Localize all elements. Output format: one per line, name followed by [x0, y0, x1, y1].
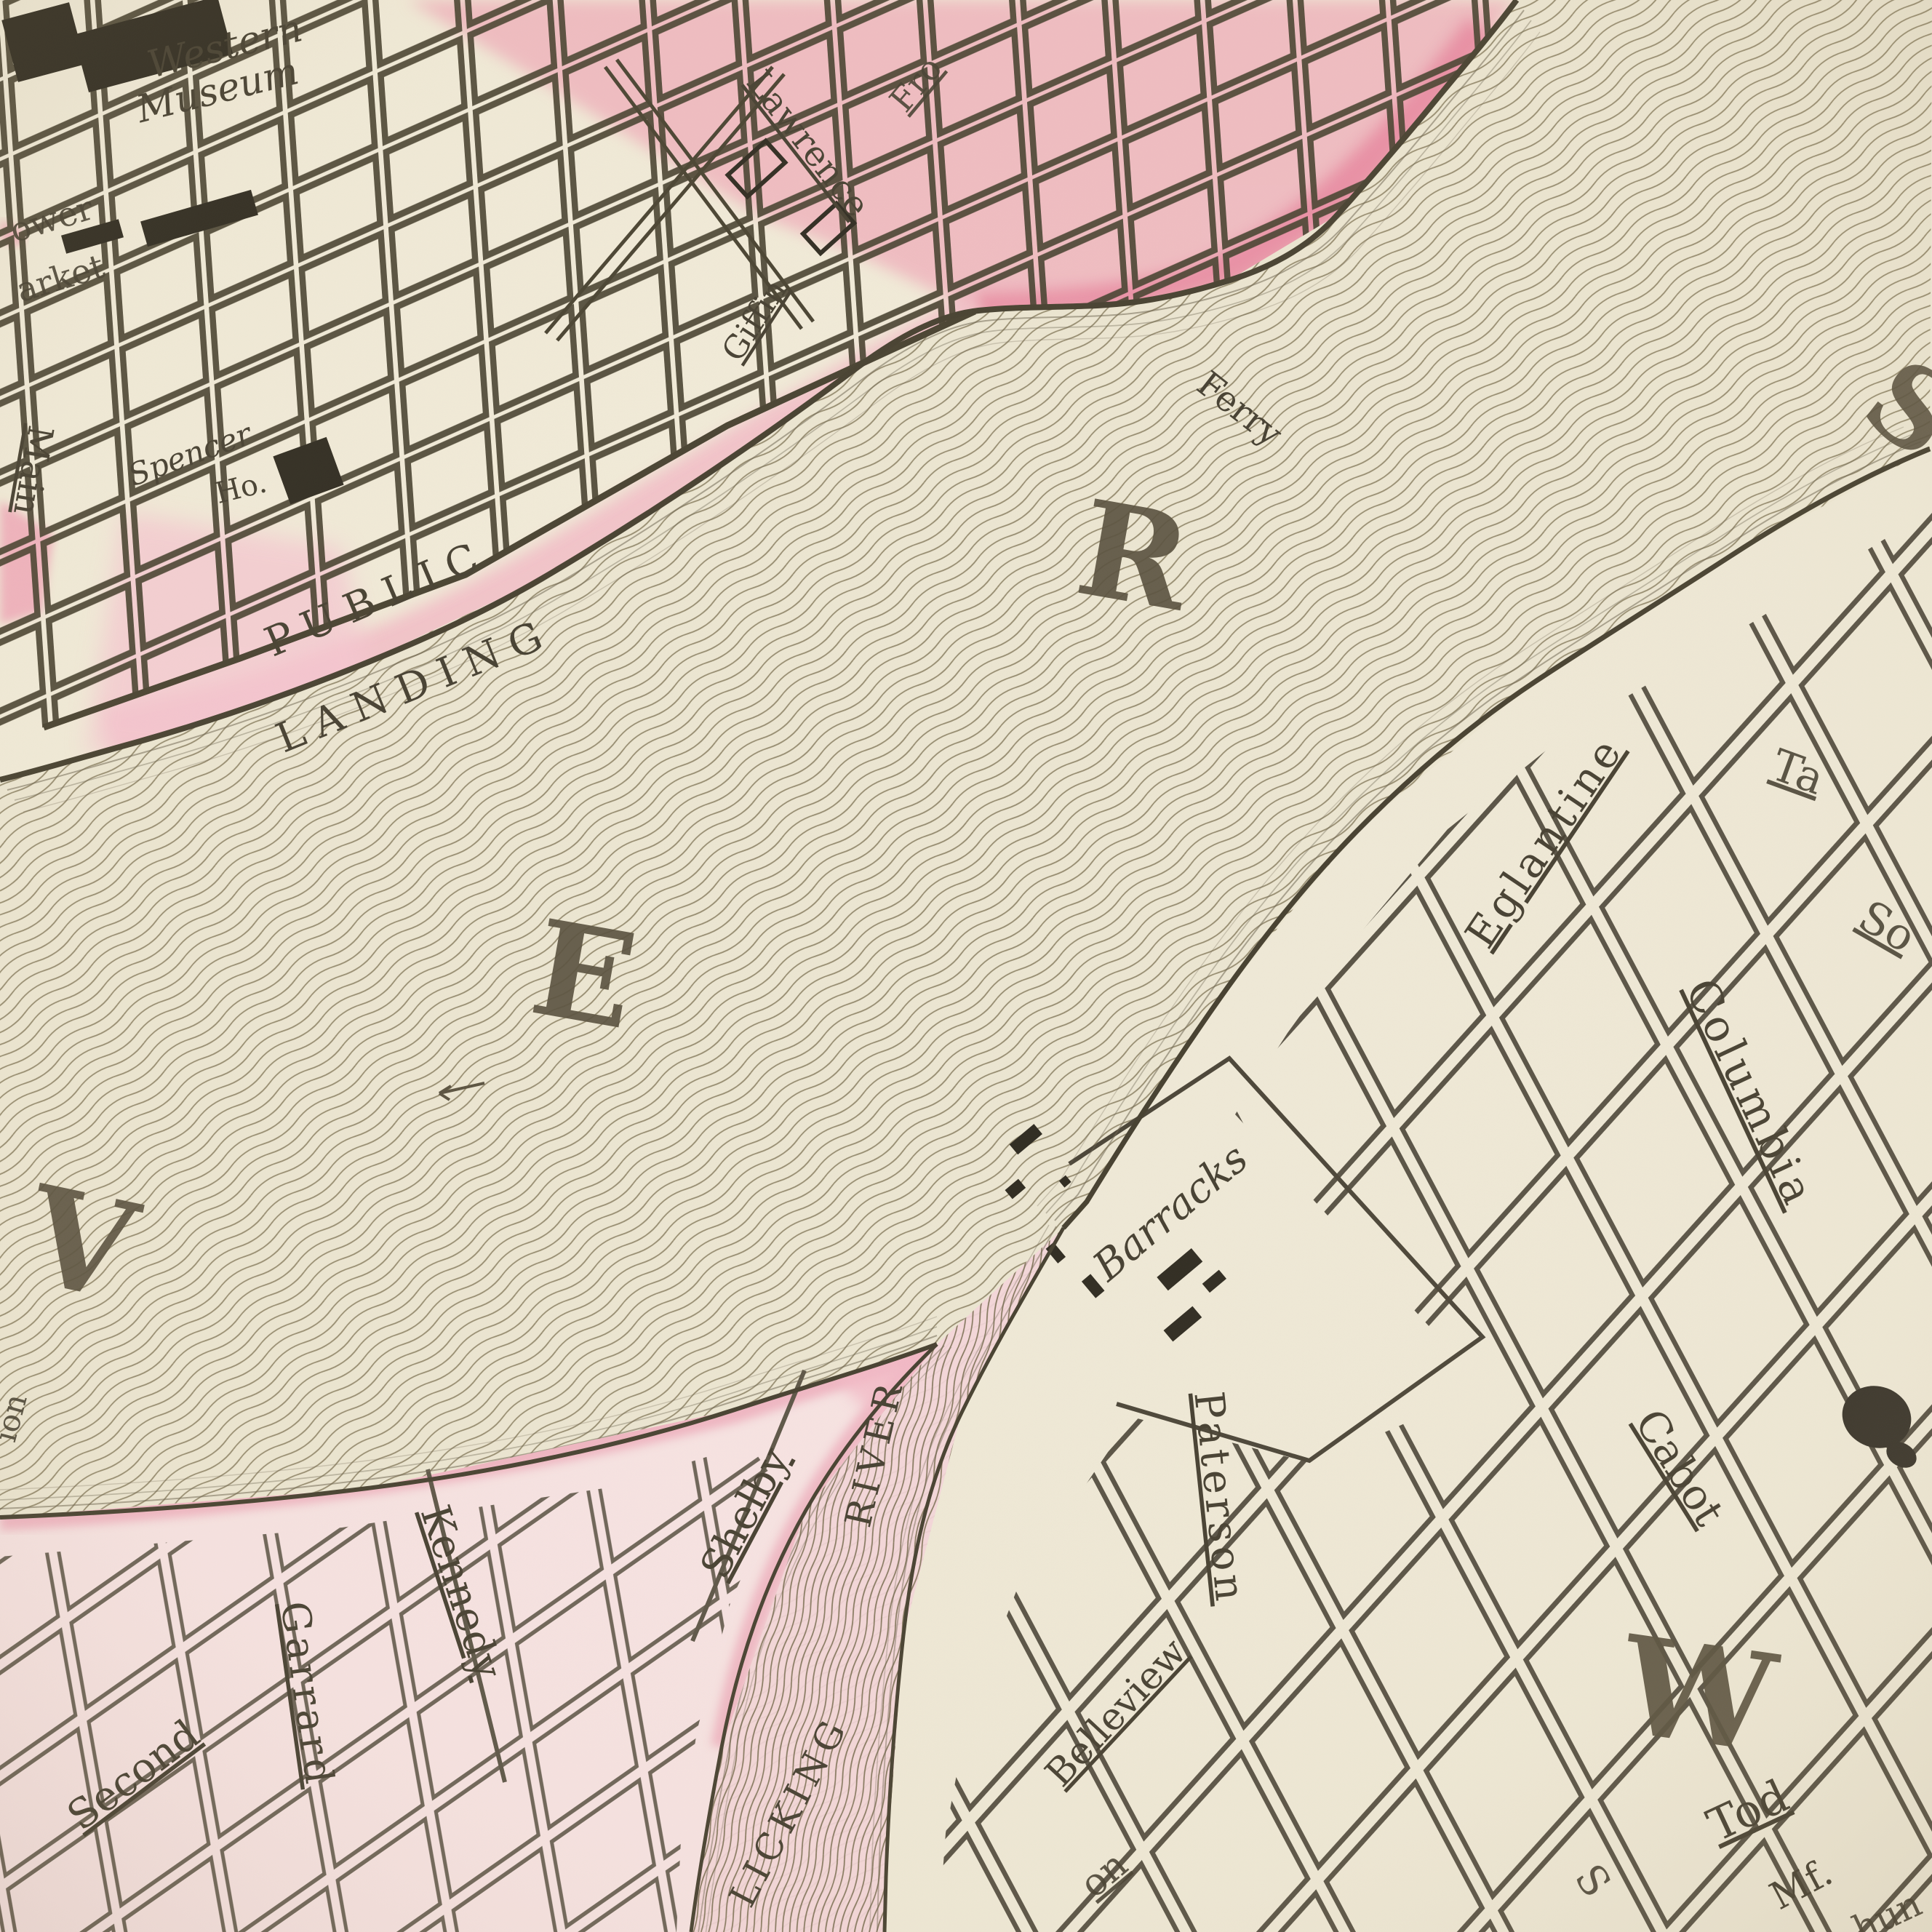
map-svg: WesternMuseumowerarketMainSpencerHo.PUBL… [0, 0, 1932, 1932]
map-canvas: WesternMuseumowerarketMainSpencerHo.PUBL… [0, 0, 1932, 1932]
paper-grain-overlay [0, 0, 1932, 1932]
